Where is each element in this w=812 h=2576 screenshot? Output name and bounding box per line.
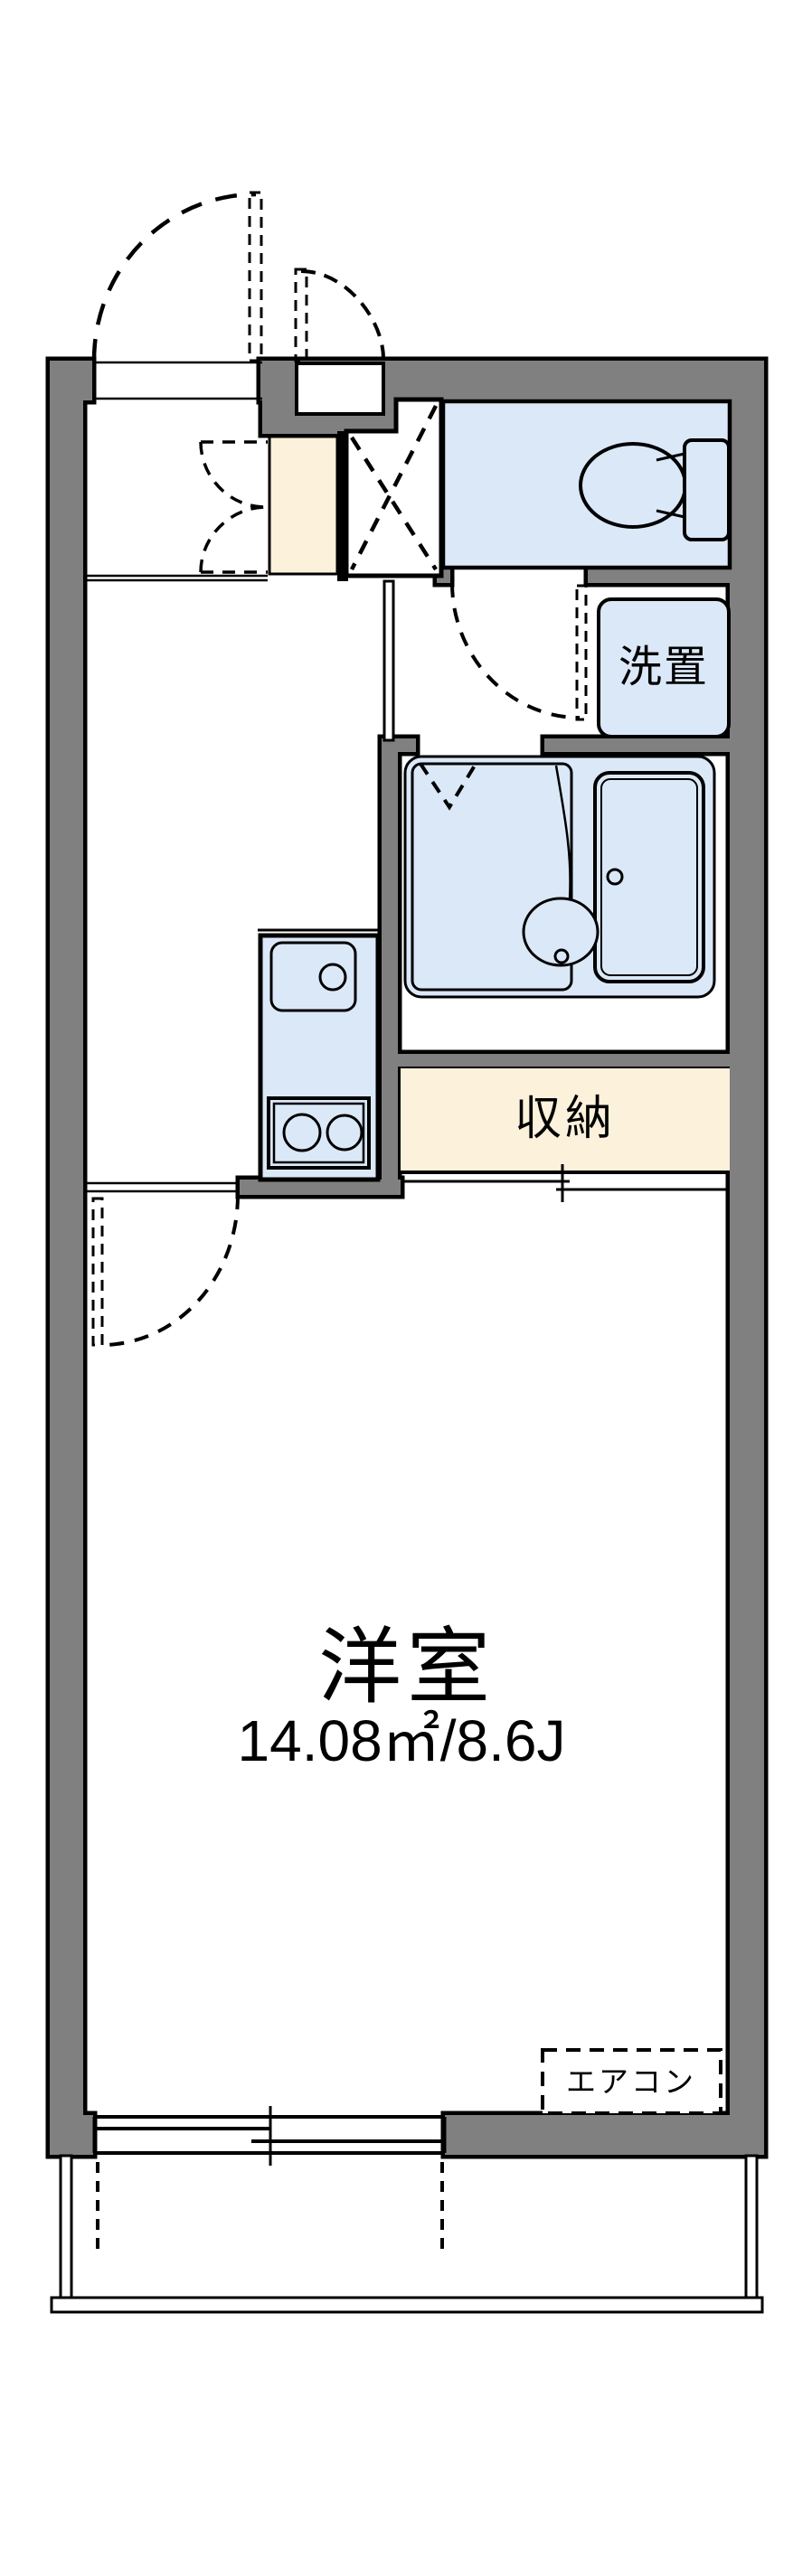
room-door-opening (83, 1183, 238, 1191)
toilet-room (443, 401, 730, 568)
meter-box-door-swing (296, 269, 383, 361)
shoe-cabinet-door-swing (201, 442, 268, 572)
shoe-cabinet (269, 431, 348, 581)
entrance-door-swing (94, 193, 261, 361)
air-conditioner-label: エアコン (566, 2067, 696, 2097)
partition-wall (384, 581, 393, 740)
entrance-step-lines (83, 576, 268, 580)
washer-space-label: 洗置 (618, 646, 709, 690)
main-room-label: 洋室 (318, 1626, 496, 1709)
kitchen-unit (258, 930, 380, 1180)
meter-box-niche (297, 363, 383, 414)
main-room-area-label: 14.08㎡/8.6J (238, 1712, 566, 1770)
window-sliding (94, 2106, 445, 2166)
room-door-swing (93, 1195, 238, 1345)
entrance-opening (92, 362, 262, 399)
bathroom-unit (405, 757, 714, 997)
floorplan: 洋室 14.08㎡/8.6J 収納 洗置 エアコン (0, 0, 812, 2576)
kitchen-sink-icon (271, 943, 355, 1011)
washbasin-icon (524, 898, 598, 965)
balcony (52, 2156, 762, 2312)
toilet-door-swing (452, 583, 586, 719)
floorplan-canvas (0, 0, 812, 2576)
storage-label: 収納 (515, 1095, 616, 1142)
